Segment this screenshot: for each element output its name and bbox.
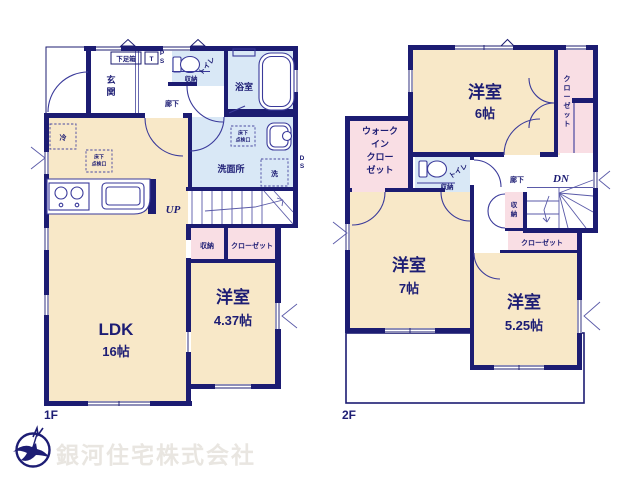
window-marker [599, 171, 610, 189]
hatch-label: 床下 [238, 130, 248, 137]
toilet-tank-icon [173, 57, 181, 72]
vent-marker [501, 40, 514, 47]
hallway-2f-label: 廊下 [510, 175, 524, 184]
hatch-label: 点検口 [92, 161, 107, 168]
fridge-label: 冷 [60, 133, 67, 142]
closet-side-label: ト [564, 120, 571, 128]
vent-marker [121, 40, 135, 47]
closet-side-label: ゼ [564, 101, 571, 110]
floorplan-canvas: 下足箱 T P S 玄 関 廊下 トイレ 収納 浴室 洗面所 洗 冷 床下 点検… [0, 0, 640, 480]
closet-side-label: ッ [564, 112, 571, 119]
bedroom-6-name: 洋室 [468, 82, 502, 102]
company-watermark: 銀河住宅株式会社 [56, 442, 256, 468]
floor-2f: 洋室 6帖 ク ロ ー ゼ ッ ト ウォーク イン クロー ゼット トイレ 収納… [333, 40, 610, 423]
ps-label: P [160, 50, 165, 57]
storage-2f-label: 収 [511, 200, 518, 209]
room-ldk [48, 118, 188, 402]
laundry-label: 洗 [271, 169, 278, 178]
t-box-label: T [150, 56, 154, 63]
toilet-bowl-icon [181, 57, 200, 73]
genkan-label: 関 [106, 87, 115, 97]
floorplan-page: 下足箱 T P S 玄 関 廊下 トイレ 収納 浴室 洗面所 洗 冷 床下 点検… [0, 0, 640, 480]
ds-label: D [300, 155, 305, 162]
hatch-label: 点検口 [236, 137, 251, 144]
window-marker [333, 222, 347, 244]
bedroom-437-size: 4.37帖 [214, 313, 252, 328]
toilet-tank-icon [419, 161, 427, 177]
wic-label: ウォーク [362, 126, 398, 136]
closet-2f-label: クローゼット [521, 238, 563, 247]
bedroom-6-size: 6帖 [475, 106, 495, 121]
ldk-size: 16帖 [102, 344, 129, 359]
bedroom-437-name: 洋室 [216, 287, 250, 307]
storage-1f-label: 収納 [200, 241, 214, 250]
bedroom-525-size: 5.25帖 [505, 318, 543, 333]
window-marker [584, 302, 600, 330]
porch [46, 47, 88, 118]
closet-side-label: ロ [564, 84, 571, 92]
bedroom-7-size: 7帖 [399, 281, 419, 296]
bathtub-icon [259, 53, 294, 110]
hatch-label: 床下 [94, 154, 104, 161]
wic-label: ゼット [366, 164, 393, 175]
washbasin-faucet [283, 132, 292, 141]
hallway-1f-label: 廊下 [165, 99, 179, 108]
ps-label: S [160, 58, 165, 65]
ldk-name: LDK [99, 320, 135, 339]
bedroom-7-name: 洋室 [392, 255, 426, 275]
closet-1f-label: クローゼット [231, 241, 273, 250]
wic-label: イン [371, 139, 389, 149]
toilet-storage-1f-label: 収納 [185, 74, 199, 83]
compass-icon [13, 428, 50, 467]
bedroom-525-name: 洋室 [507, 292, 541, 312]
bath-label: 浴室 [235, 81, 253, 92]
room-storage-2f [505, 192, 523, 228]
toilet-bowl-icon [428, 161, 447, 177]
floor-1f-label: 1F [44, 408, 58, 422]
vent-marker [191, 40, 205, 47]
storage-2f-label: 納 [511, 209, 518, 218]
floor-2f-label: 2F [342, 408, 356, 422]
closet-side-label: ク [564, 74, 571, 83]
stairs-2f [527, 180, 593, 228]
window-marker [31, 147, 45, 169]
genkan-label: 玄 [106, 74, 115, 85]
wic-label: クロー [366, 152, 393, 162]
up-label: UP [166, 204, 181, 216]
closet-side-label: ー [564, 94, 571, 101]
ds-label: S [300, 163, 305, 170]
window-marker [282, 304, 297, 328]
stairs-1f [192, 191, 293, 224]
shoe-box-label: 下足箱 [116, 54, 136, 63]
toilet-storage-2f-label: 収納 [441, 182, 455, 191]
washroom-label: 洗面所 [217, 163, 244, 174]
floor-1f: 下足箱 T P S 玄 関 廊下 トイレ 収納 浴室 洗面所 洗 冷 床下 点検… [31, 40, 305, 423]
dn-label: DN [552, 173, 570, 185]
